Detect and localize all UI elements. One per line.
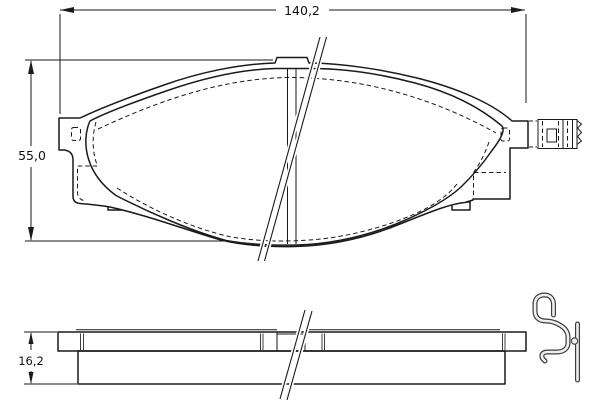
arrowhead-down-icon [28, 227, 34, 241]
height-dimension-label: 55,0 [18, 148, 46, 163]
connector-body [538, 120, 577, 149]
arrowhead-up-icon [29, 332, 34, 344]
connector-terminal [547, 129, 557, 142]
connector-serrated-edge [577, 121, 582, 148]
width-dimension-label: 140,2 [284, 3, 320, 18]
break-lines-edge [280, 310, 312, 400]
thickness-dimension-label: 16,2 [18, 354, 44, 368]
technical-drawing-canvas: 140,2 55,0 [0, 0, 600, 400]
arrowhead-right-icon [511, 7, 525, 13]
retaining-clip-icon [535, 295, 578, 380]
arrowhead-left-icon [60, 7, 74, 13]
brake-pad-drawing: 140,2 55,0 [0, 0, 600, 400]
arrowhead-down-icon [29, 372, 34, 384]
clip-eyelet [571, 338, 577, 344]
wear-indicator-connector-icon [529, 120, 582, 149]
arrowhead-up-icon [28, 60, 34, 74]
